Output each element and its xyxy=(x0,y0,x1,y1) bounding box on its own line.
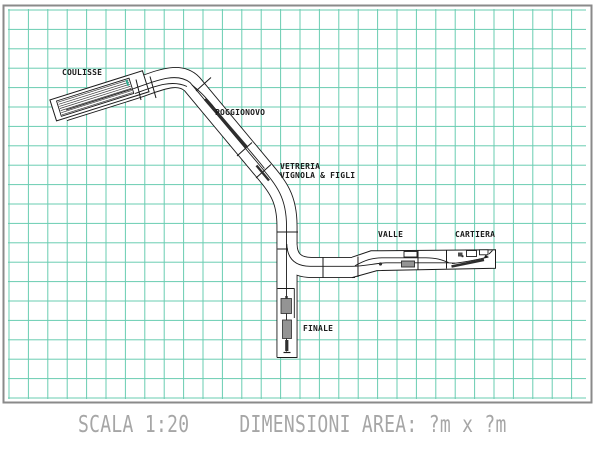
caption: SCALA 1:20 DIMENSIONI AREA: ?m x ?m xyxy=(78,414,507,437)
label-vetreria-line2: VIGNOLA & FIGLI xyxy=(280,172,355,180)
label-cartiera: CARTIERA xyxy=(455,231,495,239)
label-valle: VALLE xyxy=(378,231,403,239)
cartiera-signal-dot xyxy=(461,255,463,257)
finale-building-2 xyxy=(283,320,292,339)
cartiera-building-3 xyxy=(480,250,489,255)
valle-building-2 xyxy=(402,261,415,267)
caption-scale: SCALA 1:20 xyxy=(78,414,189,437)
cartiera-building-1 xyxy=(467,251,477,257)
valle-building-1 xyxy=(404,252,417,258)
caption-area-dimensions: DIMENSIONI AREA: ?m x ?m xyxy=(239,414,506,437)
label-poggionovo: POGGIONOVO xyxy=(215,109,265,117)
label-finale: FINALE xyxy=(303,325,333,333)
label-coulisse: COULISSE xyxy=(62,69,102,77)
drawing-area: COULISSE POGGIONOVO VETRERIA VIGNOLA & F… xyxy=(0,0,600,453)
finale-building-1 xyxy=(281,299,292,314)
label-vetreria-line1: VETRERIA xyxy=(280,163,320,171)
valle-signal-dot xyxy=(379,262,382,265)
